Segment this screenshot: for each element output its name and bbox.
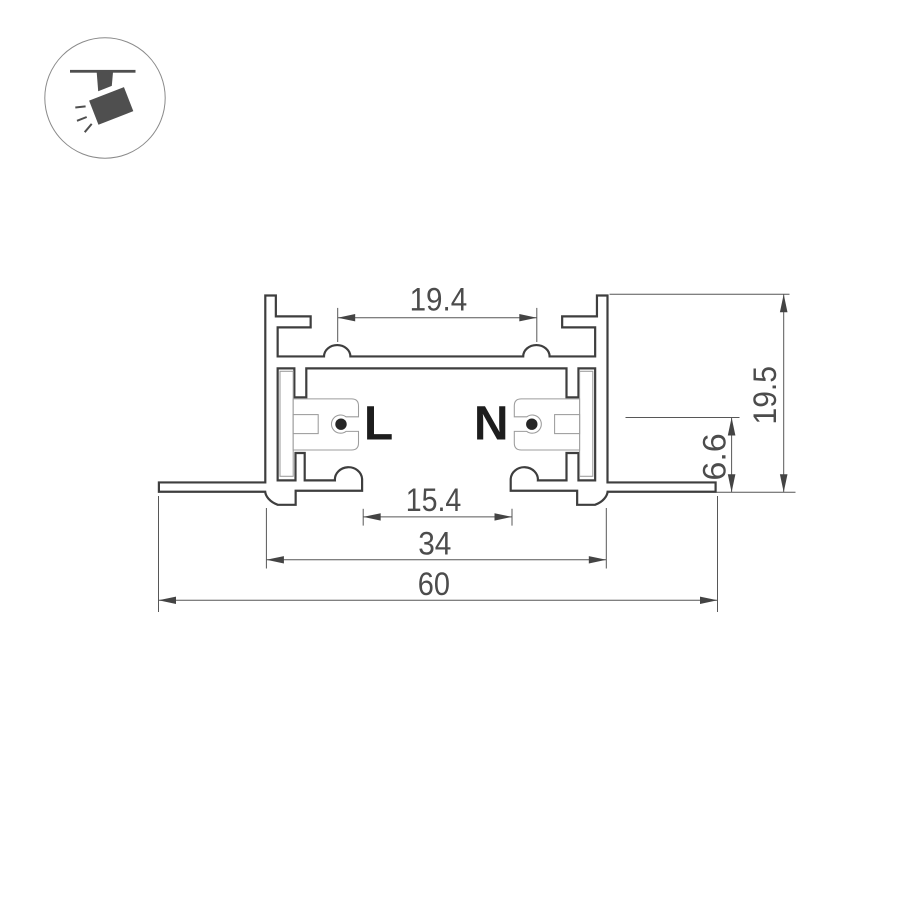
svg-text:60: 60: [418, 566, 450, 602]
svg-text:19.4: 19.4: [410, 281, 468, 317]
svg-text:15.4: 15.4: [406, 482, 462, 518]
svg-text:N: N: [474, 398, 509, 451]
svg-text:L: L: [364, 398, 393, 451]
svg-text:34: 34: [418, 526, 451, 562]
svg-text:6.6: 6.6: [697, 433, 733, 481]
svg-text:19.5: 19.5: [747, 366, 783, 425]
